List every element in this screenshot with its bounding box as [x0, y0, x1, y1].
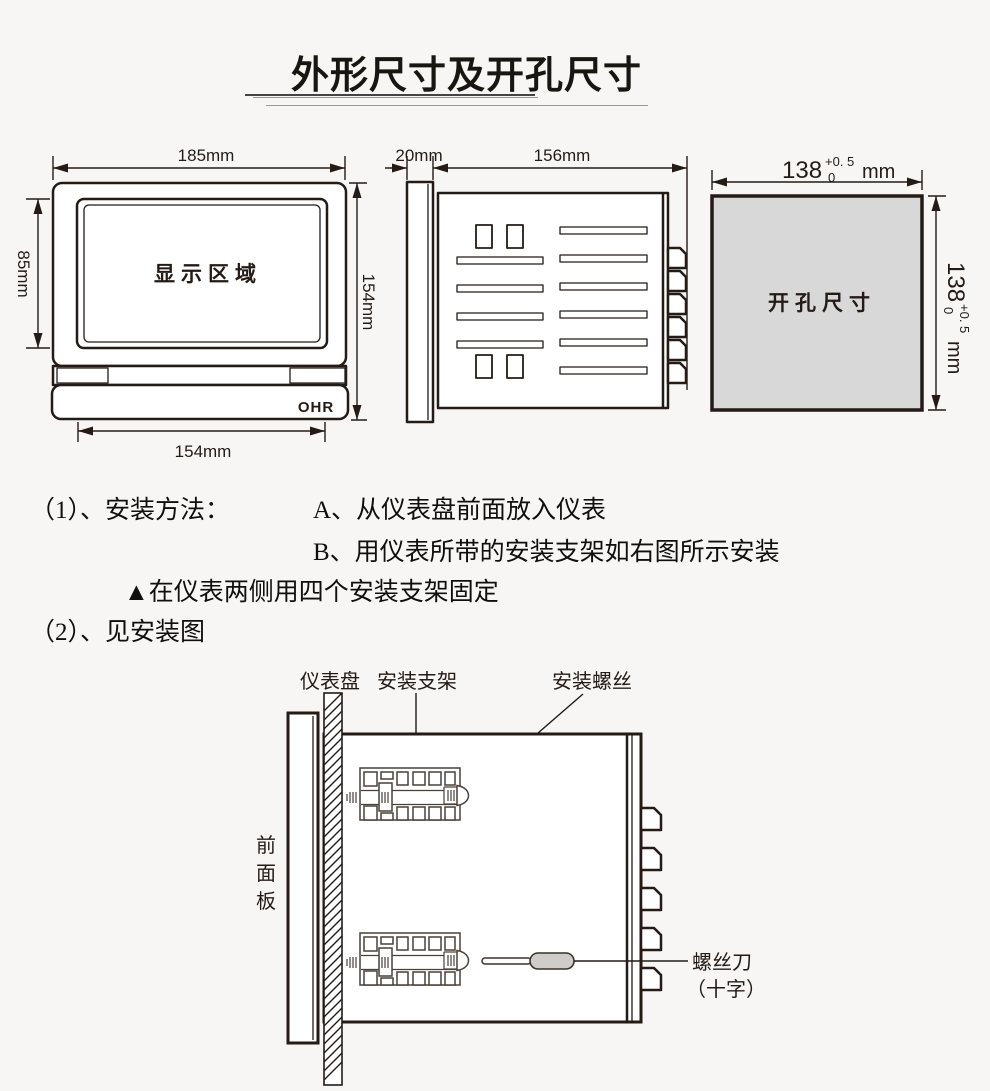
- dim-front-bottom-width-label: 154mm: [175, 442, 232, 461]
- side-view: 20mm 156mm: [385, 146, 687, 422]
- front-panel-label-char-2: 面: [256, 863, 276, 885]
- dim-front-width-label: 185mm: [178, 146, 235, 165]
- dim-front-height-label: 154mm: [359, 274, 378, 331]
- screwdriver-shaft: [482, 958, 531, 964]
- latch-left: [57, 368, 108, 383]
- front-panel-label-char-1: 前: [256, 834, 276, 857]
- bracket-label: 安装支架: [377, 670, 457, 693]
- side-bezel: [407, 182, 433, 422]
- dim-bezel-depth-label: 20mm: [395, 146, 442, 165]
- mounting-bracket-lower: [347, 933, 469, 985]
- dim-display-height-label: 85mm: [14, 250, 33, 297]
- install-diagram: 仪表盘 安装支架 安装螺丝 前 面 板: [256, 670, 766, 1085]
- dim-front-width: 185mm: [53, 146, 345, 180]
- cutout-view: 开孔尺寸 138 +0. 5 0 mm 138 +0. 5 0 mm: [712, 154, 972, 410]
- display-area-label: 显示区域: [154, 262, 262, 286]
- front-panel-label-char-3: 板: [256, 890, 276, 913]
- latch-right: [290, 368, 345, 383]
- dim-cutout-height-tol-minus: 0: [941, 307, 956, 314]
- side-terminal-tabs: [668, 248, 686, 383]
- dim-front-height: 154mm: [349, 183, 378, 420]
- dim-cutout-width-unit: mm: [862, 161, 895, 183]
- dim-cutout-height-unit: mm: [943, 341, 965, 374]
- page: { "title": "外形尺寸及开孔尺寸", "front_view": { …: [0, 0, 990, 1091]
- technical-drawing: 显示区域 OHR 185mm 85mm 154mm: [0, 0, 990, 1091]
- side-body: [438, 193, 668, 408]
- dim-cutout-height: 138 +0. 5 0 mm: [928, 196, 972, 410]
- dim-front-bottom-width: 154mm: [78, 422, 325, 461]
- front-view: 显示区域 OHR 185mm 85mm 154mm: [14, 146, 378, 461]
- screw-label: 安装螺丝: [552, 670, 632, 693]
- mounting-bracket: [347, 768, 469, 820]
- dim-cutout-width-tol-minus: 0: [828, 170, 835, 185]
- dim-bezel-depth: 20mm: [385, 146, 443, 180]
- screwdriver-type-label: （十字）: [686, 978, 766, 1001]
- screwdriver-label: 螺丝刀: [692, 951, 752, 974]
- dim-cutout-width: 138 +0. 5 0 mm: [712, 154, 922, 190]
- dim-body-depth-label: 156mm: [534, 146, 591, 165]
- brand-logo: OHR: [298, 399, 334, 416]
- dim-cutout-width-tol-plus: +0. 5: [825, 154, 854, 169]
- screwdriver-handle: [530, 953, 574, 969]
- install-terminal-tabs: [641, 808, 661, 990]
- cutout-label: 开孔尺寸: [768, 291, 876, 315]
- dim-cutout-width-value: 138: [782, 157, 822, 184]
- dim-cutout-height-value: 138: [942, 262, 969, 302]
- dim-cutout-height-tol-plus: +0. 5: [957, 304, 972, 333]
- dim-display-height: 85mm: [14, 199, 50, 348]
- panel-label: 仪表盘: [300, 670, 360, 693]
